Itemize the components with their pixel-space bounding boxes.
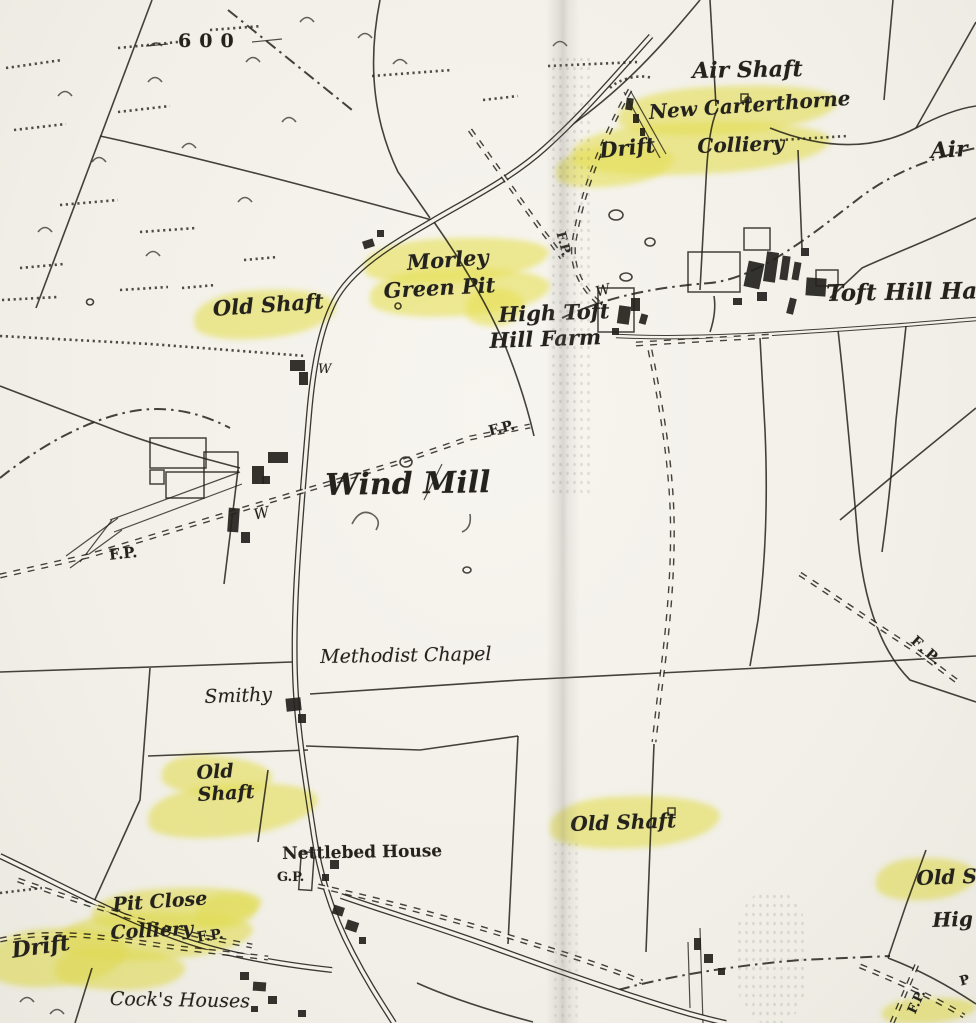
label-gp: G.P.: [277, 870, 304, 885]
label-morley: Morley: [406, 244, 489, 275]
map-canvas: 600Air ShaftNew CarterthorneCollieryDrif…: [0, 0, 976, 1023]
label-w-road: W: [318, 362, 331, 377]
label-high-toft: High Toft: [498, 298, 610, 327]
label-colliery-pit-close: Colliery: [110, 918, 194, 944]
label-old-s-right-partial: Old S: [916, 864, 976, 890]
label-new-carterthorne: New Carterthorne: [648, 86, 851, 124]
label-green-pit: Green Pit: [383, 272, 496, 303]
label-fp-toft: F.P.: [553, 230, 574, 258]
label-nettlebed-house: Nettlebed House: [282, 841, 442, 864]
label-old-shaft-left: Old Shaft: [212, 288, 325, 321]
label-fp-left: F.P.: [108, 543, 138, 564]
label-colliery-new-carterthorne: Colliery: [697, 131, 785, 158]
label-air-shaft-top: Air Shaft: [692, 56, 803, 84]
label-cocks-houses: Cock's Houses: [110, 988, 251, 1012]
label-drift-sw: Drift: [10, 930, 72, 964]
label-w-toft: W: [594, 281, 612, 300]
label-wind-mill: Wind Mill: [325, 465, 491, 503]
label-pit-close: Pit Close: [112, 887, 208, 916]
labels-layer: 600Air ShaftNew CarterthorneCollieryDrif…: [0, 0, 976, 1023]
label-smithy: Smithy: [204, 684, 272, 708]
label-w-windmill: W: [252, 503, 271, 524]
label-p-right-partial: P: [958, 972, 971, 989]
label-toft-hill-hall: Toft Hill Hall: [826, 277, 976, 307]
label-fp-right: F.P.: [907, 633, 946, 671]
label-fp-windmill: F.P.: [487, 418, 517, 440]
label-drift-top: Drift: [598, 132, 656, 163]
label-fp-pit-close: F.P.: [196, 926, 224, 946]
label-old-shaft-center: Old Shaft: [570, 808, 677, 836]
label-hill-farm: Hill Farm: [489, 324, 602, 353]
label-old-shaft-sw: OldShaft: [196, 759, 255, 807]
label-fp-se: F.P.: [905, 988, 929, 1017]
label-contour-600: 600: [178, 30, 242, 52]
label-hig-right-partial: Hig: [932, 907, 973, 932]
label-methodist-chapel: Methodist Chapel: [320, 643, 492, 668]
label-air-right-partial: Air: [930, 136, 968, 164]
